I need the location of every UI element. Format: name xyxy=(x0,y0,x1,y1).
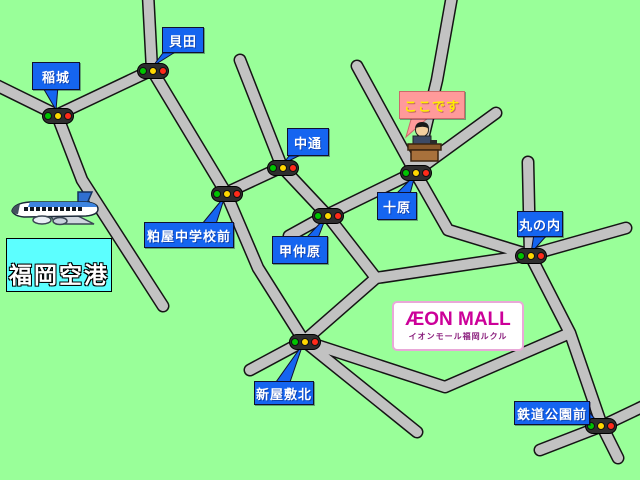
place-label-inagi: 稲城 xyxy=(32,62,80,90)
airport-label-box: 福岡空港 xyxy=(6,238,112,292)
traffic-signal-icon xyxy=(312,208,344,224)
place-label-kaida: 貝田 xyxy=(162,27,204,53)
traffic-signal-icon xyxy=(211,186,243,202)
place-label-jubaru: 十原 xyxy=(377,192,417,220)
traffic-signal-icon xyxy=(267,160,299,176)
traffic-signal-icon xyxy=(289,334,321,350)
traffic-signal-icon xyxy=(515,248,547,264)
airport-label: 福岡空港 xyxy=(9,261,109,291)
place-label-marunouchi: 丸の内 xyxy=(517,211,563,237)
place-label-nakadori: 中通 xyxy=(287,128,329,156)
place-label-kasuya-jhs-mae: 粕屋中学校前 xyxy=(144,222,234,248)
here-label: ここです xyxy=(399,91,465,119)
airplane-icon xyxy=(8,190,104,238)
aeon-mall-title: ÆON MALL xyxy=(405,310,511,329)
place-label-konakabaru: 甲仲原 xyxy=(272,236,328,264)
aeon-mall-logo: ÆON MALL イオンモール福岡ルクル xyxy=(392,301,524,351)
aeon-mall-subtitle: イオンモール福岡ルクル xyxy=(409,331,508,342)
place-label-shinyashiki-kita: 新屋敷北 xyxy=(254,381,314,405)
reception-desk-icon xyxy=(402,118,446,164)
traffic-signal-icon xyxy=(137,63,169,79)
traffic-signal-icon xyxy=(400,165,432,181)
road-map: ÆON MALL イオンモール福岡ルクル 福岡空港 稲城 貝田 中通 粕屋中学校… xyxy=(0,0,640,480)
traffic-signal-icon xyxy=(42,108,74,124)
place-label-tetsudo-koen-mae: 鉄道公園前 xyxy=(514,401,590,425)
